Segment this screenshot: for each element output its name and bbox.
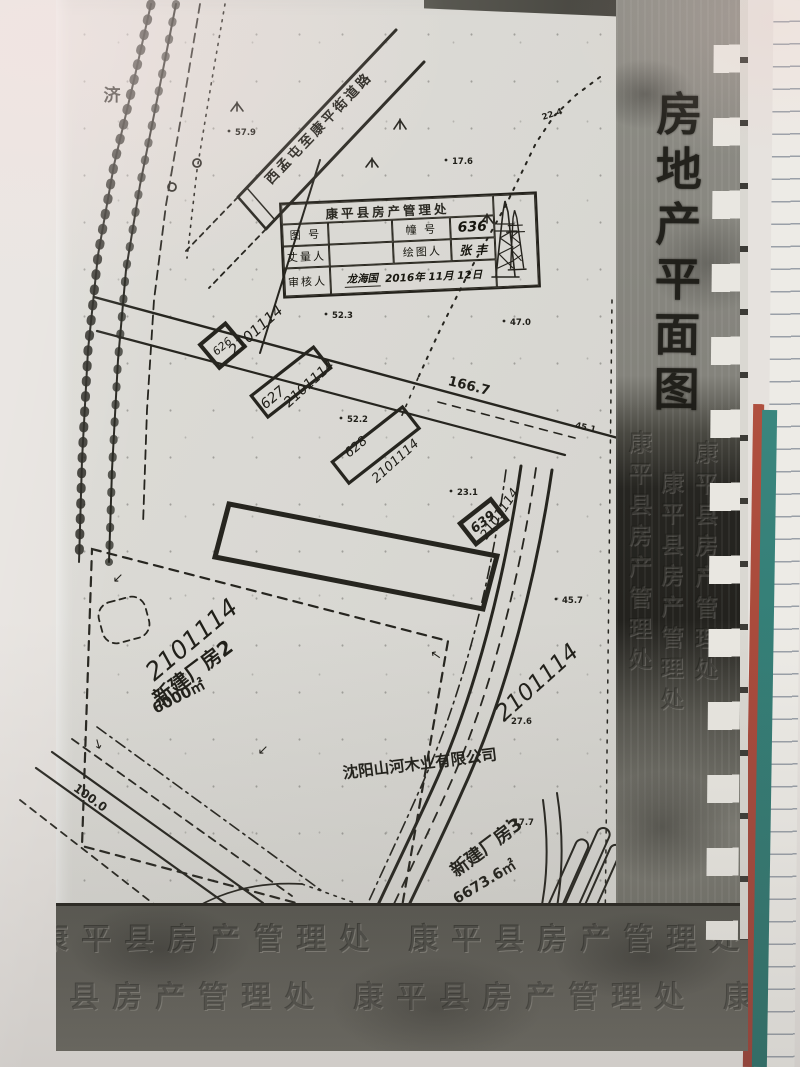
elevation: 47.0 [510,318,531,328]
watermark-text: 康平县房产管理处 [652,470,686,718]
stamp-reviewer-name: 龙海国 [344,270,380,288]
watermark-text: 康平县房产管理处 [408,914,748,958]
elevation: 17.7 [513,818,534,828]
elevation: 57.9 [235,128,256,138]
company-name: 沈阳山河木业有限公司 [342,745,498,783]
stamp-label-map-no: 图 号 [282,223,329,247]
left-road-label: 济 [104,85,122,106]
stamp-review-row: 龙海国 2016年 11月 12日 [330,259,497,294]
photo-of-site-plan-document: 济 西孟屯至康平街道路 2101114 2101114 2101114 2101… [0,0,800,1067]
stamp-date: 2016年 11月 12日 [385,266,483,285]
elevation: 52.2 [347,415,368,425]
pylon-icon [498,204,533,277]
dimension-166: 166.7 [446,373,491,399]
stamp-value-building-no: 636 [450,215,495,239]
elevation: 45.7 [562,596,583,606]
stamp-value-surveyor [329,242,394,267]
elevation: 22.4 [541,107,564,123]
elevation: 27.6 [511,717,532,727]
paper-edge-ticks [740,0,748,940]
photocopy-bottom-band: 康平县房产管理处 康平县房产管理处 康平县房产管理处 康平县房产管理处 康平县房… [56,903,748,1051]
document-title: 房地产平面图 [640,90,709,421]
long-building-slab [215,504,497,609]
stamp-value-draughtsman: 张 丰 [451,237,496,261]
corner-arrow-icon: ↙ [258,743,269,758]
corner-arrow-icon: ↙ [113,571,124,586]
street-name-band-label: 西孟屯至康平街道路 [261,68,376,187]
plot-number-label: 2101114 [225,301,287,359]
corner-arrow-icon: ↙ [89,736,107,753]
elevation: 23.1 [457,488,478,498]
watermark-text: 康平县房产管理处 [353,972,697,1016]
stamp-label-reviewer: 审核人 [284,267,331,297]
watermark-text: 康平县房产管理处 [723,972,748,1016]
stamp-label-surveyor: 丈量人 [283,245,330,269]
watermark-row: 康平县房产管理处 康平县房产管理处 康平县房产管理处 [56,972,693,1016]
watermark-text: 康平县房产管理处 [620,430,654,678]
dimension-45: 45.1 [574,421,597,435]
watermark-text: 康平县房产管理处 [56,914,382,958]
stamp-value-map-no [328,220,393,245]
corner-arrow-icon: ↙ [427,648,444,661]
stamp-pylon-cell [493,194,539,288]
stamp-table: 康平县房产管理处 图 号 幢 号 636 丈量人 绘图人 张 丰 审核人 龙海国… [279,191,541,298]
stamp-label-draughtsman: 绘图人 [393,239,452,264]
elevation: 17.6 [452,157,473,167]
map-linework [20,4,623,943]
building-number: 628 [342,434,371,461]
building-number: 626 [210,335,234,358]
stamp-label-building-no: 幢 号 [392,217,451,242]
watermark-text: 康平县房产管理处 [56,972,327,1016]
railway-lines [79,4,225,562]
elevation: 52.3 [332,311,353,321]
watermark-row: 康平县房产管理处 康平县房产管理处 康平县房产管理处 [56,914,748,958]
